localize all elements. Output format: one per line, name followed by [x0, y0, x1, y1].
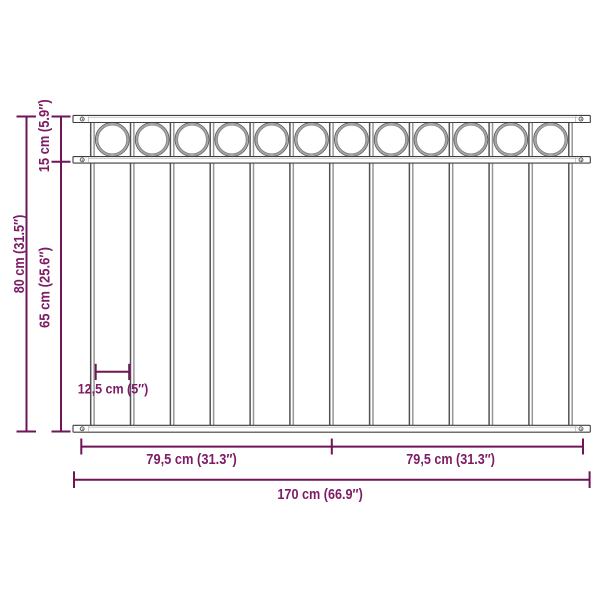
svg-text:65 cm (25.6″): 65 cm (25.6″) [37, 247, 54, 328]
svg-text:79,5 cm (31.3″): 79,5 cm (31.3″) [406, 451, 495, 468]
svg-text:79,5 cm (31.3″): 79,5 cm (31.3″) [146, 451, 237, 468]
svg-text:12,5 cm (5″): 12,5 cm (5″) [78, 380, 149, 396]
svg-text:15 cm (5.9″): 15 cm (5.9″) [36, 99, 53, 172]
svg-text:170 cm (66.9″): 170 cm (66.9″) [277, 486, 362, 503]
svg-text:80 cm (31.5″): 80 cm (31.5″) [11, 215, 28, 294]
